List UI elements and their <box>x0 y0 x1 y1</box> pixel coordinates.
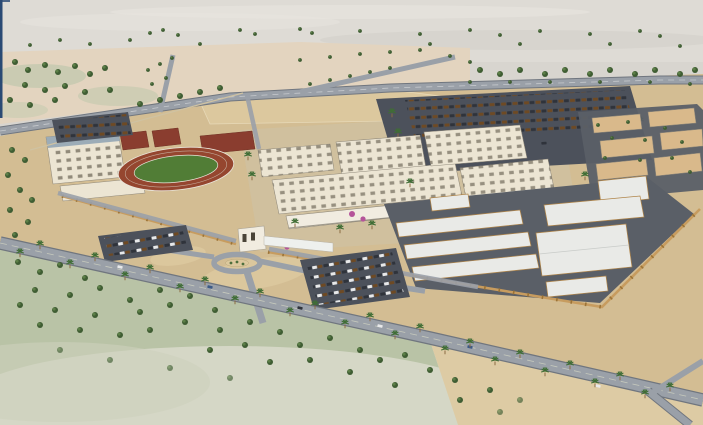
roundabout-island <box>226 259 249 267</box>
rendering-canvas <box>0 0 703 425</box>
aerial-rendering <box>0 0 703 425</box>
